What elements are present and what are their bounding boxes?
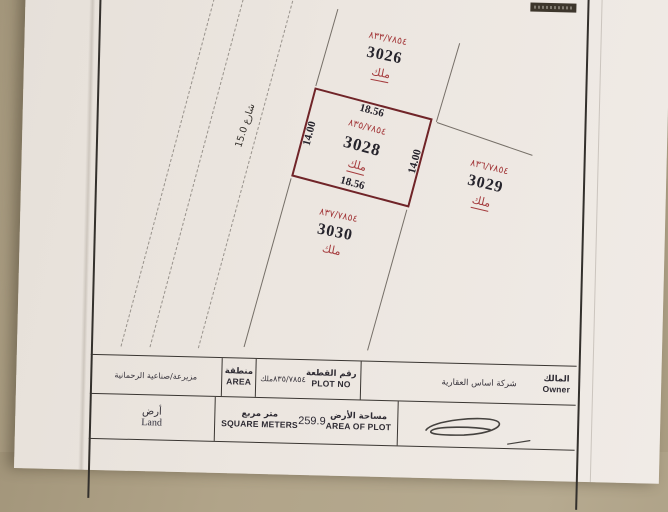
square-meters-label-en: SQUARE METERS <box>221 419 298 431</box>
square-meters-cell: متر مربع SQUARE METERS 259.9 مساحة الأرض… <box>215 397 399 445</box>
plot-number: 3029 <box>466 173 505 197</box>
dimension-top: 18.56 <box>358 103 385 120</box>
land-label-ar: أرض <box>142 406 162 418</box>
area-value-cell: مزيرعة/صناعية الرحمانية <box>90 355 222 396</box>
plot-no-value: ٨٣٥/٧٨٥٤ <box>273 374 306 384</box>
owner-value: شركة اساس العقارية <box>441 377 516 389</box>
area-value: مزيرعة/صناعية الرحمانية <box>114 370 197 381</box>
stamp-text-illegible <box>534 6 572 10</box>
signature <box>412 408 543 450</box>
square-meters-header: متر مربع SQUARE METERS <box>221 409 298 430</box>
area-of-plot-label-en: AREA OF PLOT <box>326 422 392 433</box>
land-label-en: Land <box>141 417 162 429</box>
dimension-bottom: 18.56 <box>339 175 366 192</box>
owner-label-en: Owner <box>542 385 570 395</box>
owner-mark: ملك <box>346 157 368 175</box>
plot-no-cell: ملك ٨٣٥/٧٨٥٤ رقم القطعة PLOT NO <box>256 359 362 400</box>
plot-number: 3026 <box>365 45 403 68</box>
land-cell: أرض Land <box>89 394 216 441</box>
dimension-left: 14.00 <box>302 120 319 147</box>
corner-stamp <box>530 3 576 13</box>
area-of-plot-header: مساحة الأرض AREA OF PLOT <box>326 412 392 433</box>
plot-number: 3030 <box>316 221 354 244</box>
owner-cell: شركة اساس العقارية المالك Owner <box>361 362 577 405</box>
owner-header: المالك Owner <box>542 375 570 395</box>
plot-area-value: 259.9 <box>298 415 326 428</box>
area-label-en: AREA <box>226 377 251 387</box>
plot-no-label-en: PLOT NO <box>311 379 350 390</box>
area-header-cell: منطقة AREA <box>221 358 257 397</box>
document-sheet: شارع 15.0 ٨٣٣/٧٨٥٤ 3026 ملك 18.56 ٨٣٥/٧٨… <box>14 0 668 484</box>
plot-no-header: رقم القطعة PLOT NO <box>306 369 357 390</box>
photo-background: { "document": { "street": { "label": "شا… <box>0 0 668 452</box>
plot-no-owner-word: ملك <box>260 374 273 383</box>
title-block-table: مزيرعة/صناعية الرحمانية منطقة AREA ملك ٨… <box>89 354 577 451</box>
signature-cell <box>398 401 576 449</box>
plot-number: 3028 <box>342 133 383 159</box>
under-sheet-edge <box>590 0 603 482</box>
